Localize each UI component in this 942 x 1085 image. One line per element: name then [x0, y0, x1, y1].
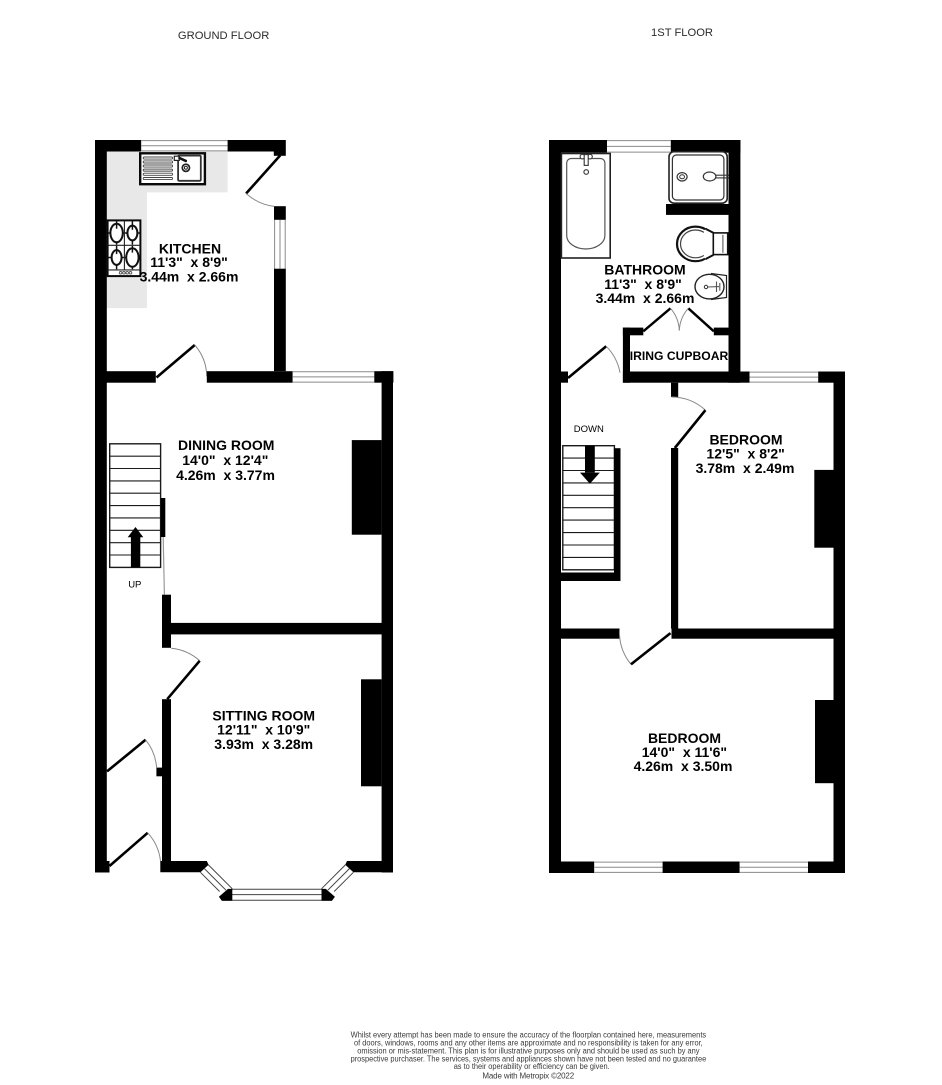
svg-text:UP: UP [128, 580, 141, 591]
svg-text:3.78m x 2.49m: 3.78m x 2.49m [696, 460, 795, 476]
svg-text:as to their operability or eff: as to their operability or efficiency ca… [454, 1062, 610, 1071]
svg-text:DINING ROOM: DINING ROOM [178, 437, 274, 453]
svg-text:DOWN: DOWN [574, 424, 604, 435]
svg-text:14'0" x 12'4": 14'0" x 12'4" [182, 452, 268, 468]
svg-text:11'3" x 8'9": 11'3" x 8'9" [150, 254, 228, 270]
svg-text:4.26m x 3.50m: 4.26m x 3.50m [634, 758, 733, 774]
svg-text:3.93m x 3.28m: 3.93m x 3.28m [214, 736, 313, 752]
svg-text:Made with Metropix ©2022: Made with Metropix ©2022 [482, 1071, 574, 1080]
svg-text:1ST FLOOR: 1ST FLOOR [651, 27, 713, 39]
svg-text:4.26m x 3.77m: 4.26m x 3.77m [176, 467, 275, 483]
svg-text:GROUND FLOOR: GROUND FLOOR [178, 30, 269, 42]
svg-text:AIRING CUPBOARD: AIRING CUPBOARD [621, 349, 737, 363]
svg-text:3.44m x 2.66m: 3.44m x 2.66m [140, 268, 239, 284]
svg-text:3.44m x 2.66m: 3.44m x 2.66m [596, 290, 695, 306]
